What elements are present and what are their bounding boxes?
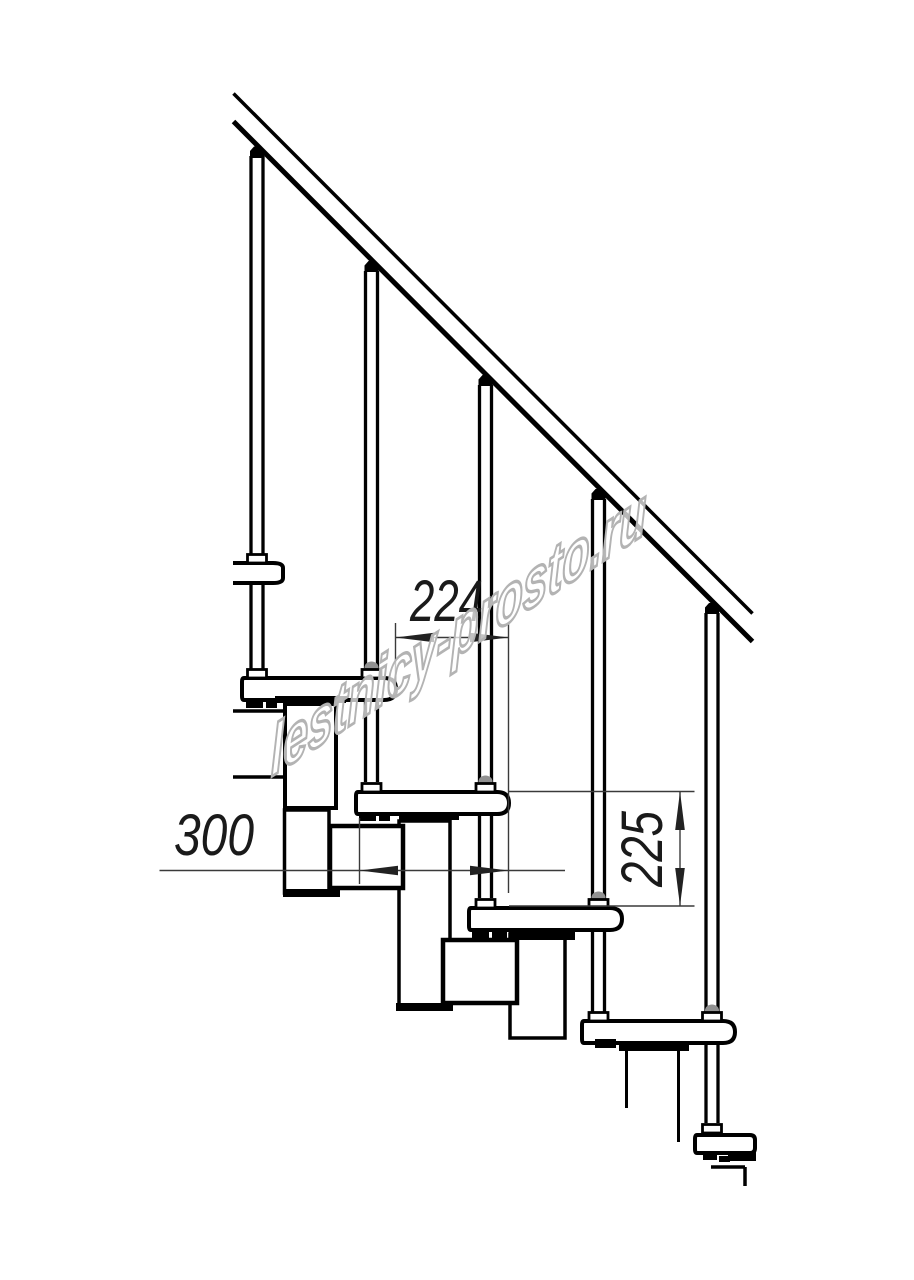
svg-text:225: 225: [610, 810, 675, 887]
svg-text:300: 300: [174, 803, 254, 868]
